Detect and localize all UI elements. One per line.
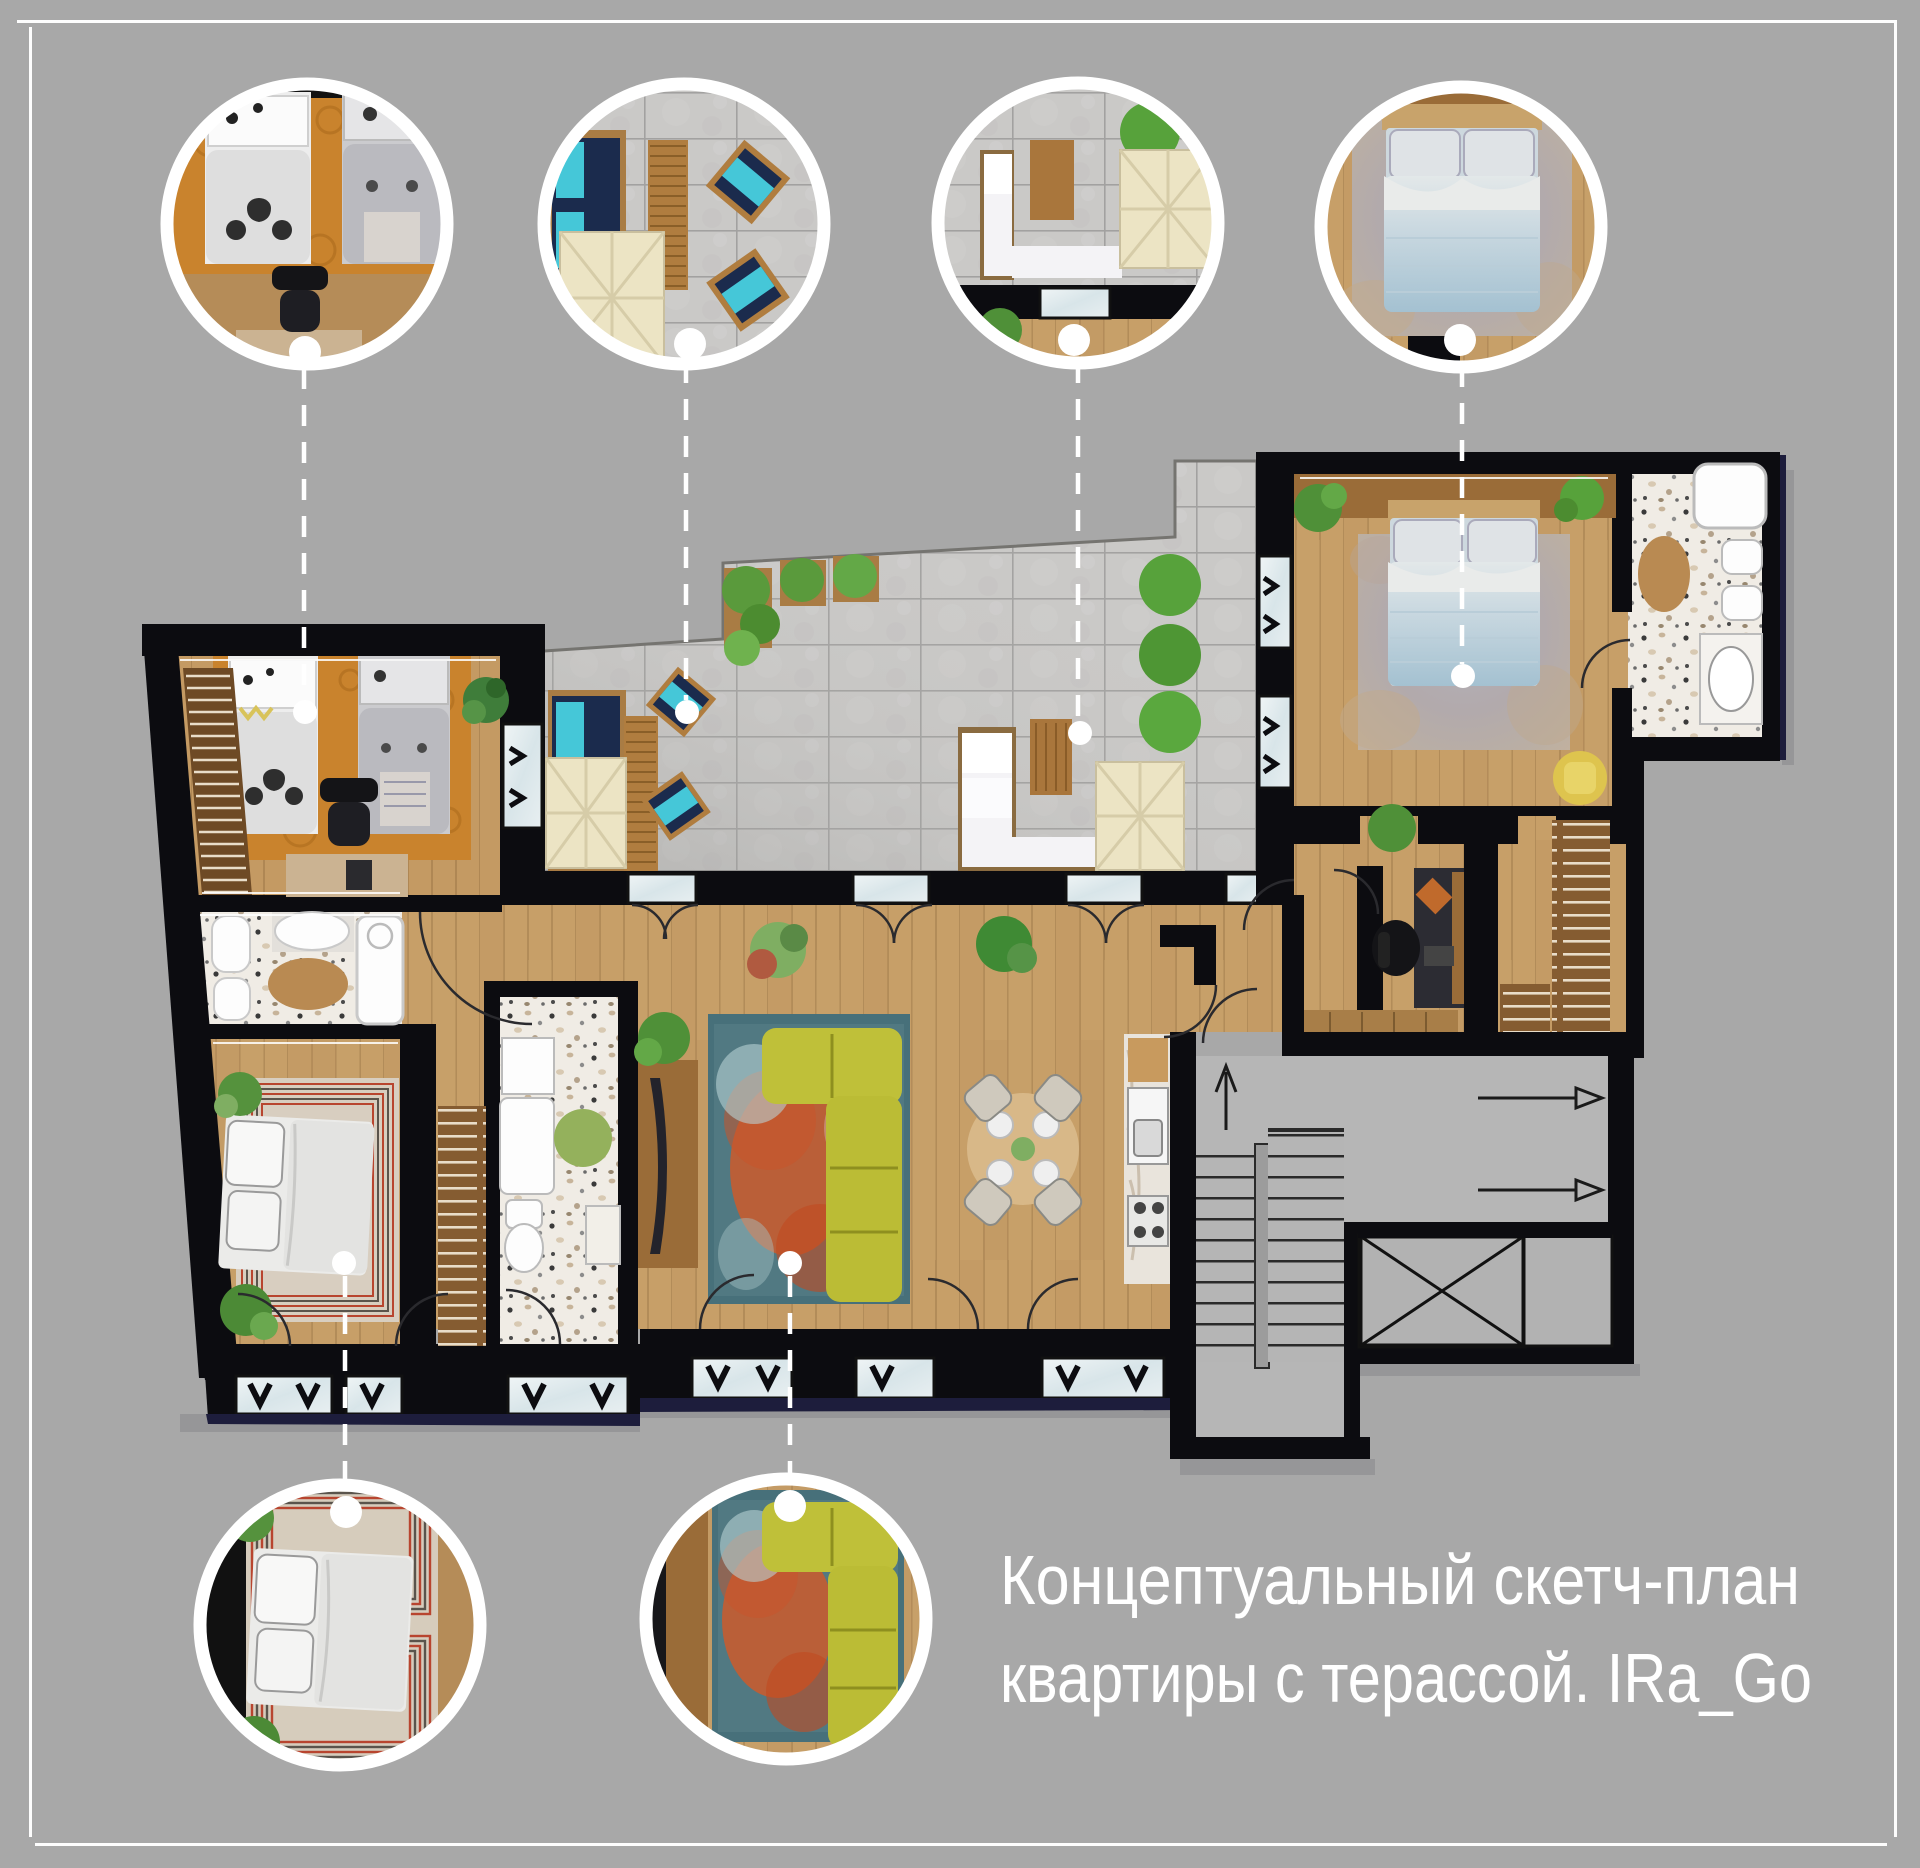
svg-text:квартиры с терассой. IRa_Go: квартиры с терассой. IRa_Go (1000, 1639, 1812, 1717)
svg-text:Концептуальный скетч-план: Концептуальный скетч-план (1000, 1541, 1800, 1619)
